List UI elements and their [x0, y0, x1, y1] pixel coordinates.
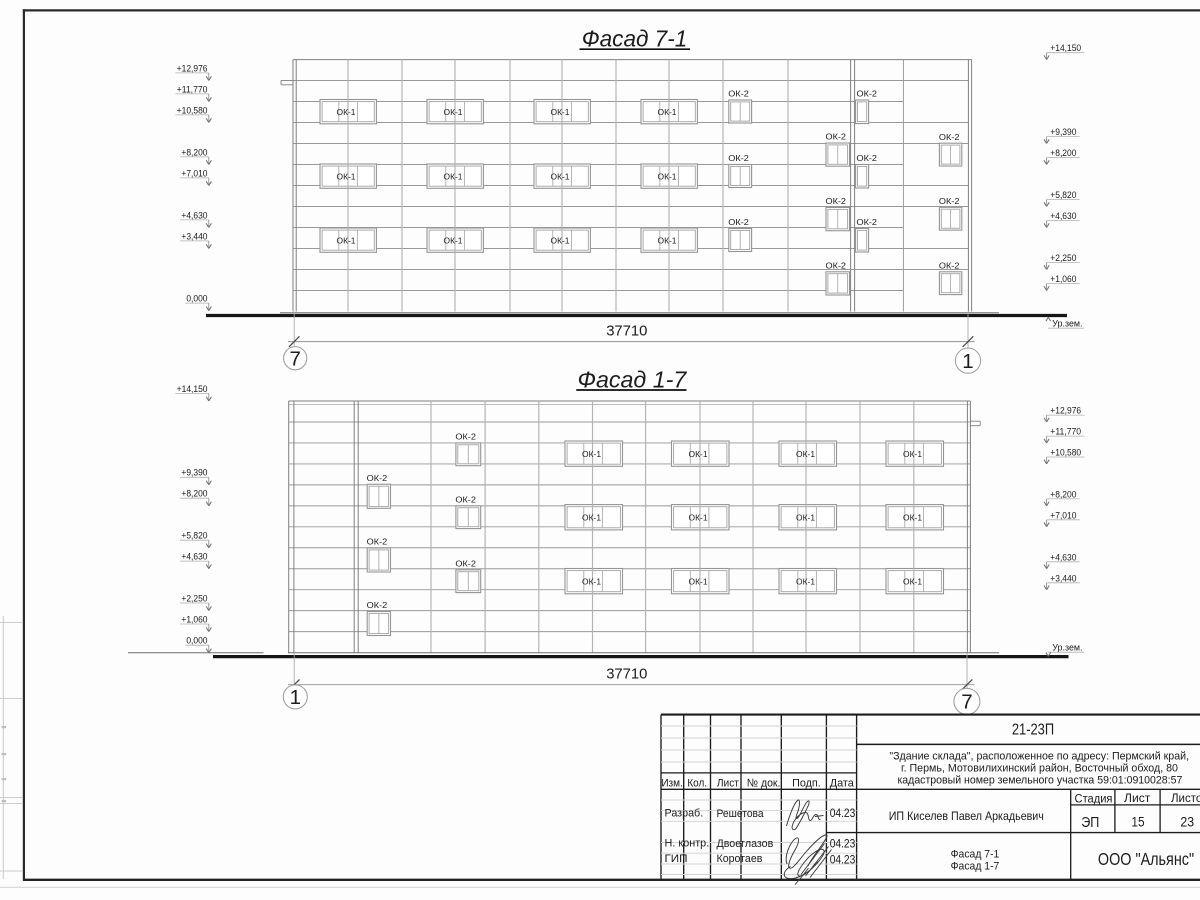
svg-text:+8,200: +8,200	[181, 489, 207, 499]
svg-text:+7,010: +7,010	[1050, 510, 1076, 520]
svg-text:ОК-1: ОК-1	[796, 512, 815, 522]
svg-text:Подп.: Подп.	[792, 777, 821, 789]
svg-text:ОК-2: ОК-2	[857, 217, 878, 227]
svg-text:+1,060: +1,060	[181, 614, 207, 624]
svg-text:15: 15	[1131, 813, 1144, 829]
svg-text:ОК-2: ОК-2	[939, 132, 960, 142]
svg-text:+14,150: +14,150	[1050, 43, 1081, 53]
svg-text:ОК-2: ОК-2	[826, 261, 847, 271]
svg-text:ОК-1: ОК-1	[689, 576, 708, 586]
svg-text:ОК-1: ОК-1	[658, 171, 677, 181]
svg-text:ОК-2: ОК-2	[455, 432, 476, 442]
svg-text:ОК-1: ОК-1	[337, 235, 356, 245]
svg-text:37710: 37710	[606, 666, 647, 683]
svg-text:04.23: 04.23	[830, 837, 856, 850]
svg-text:ОК-2: ОК-2	[728, 153, 749, 163]
svg-text:ОК-2: ОК-2	[455, 559, 476, 569]
svg-text:+7,010: +7,010	[181, 168, 207, 178]
svg-text:+9,390: +9,390	[1050, 127, 1076, 137]
svg-text:ОК-2: ОК-2	[857, 153, 878, 163]
svg-text:ОК-1: ОК-1	[582, 576, 601, 586]
svg-text:ОК-1: ОК-1	[551, 171, 570, 181]
svg-text:ОК-1: ОК-1	[444, 171, 463, 181]
svg-text:+12,976: +12,976	[1050, 406, 1081, 416]
svg-text:0,000: 0,000	[186, 294, 207, 304]
svg-text:21-23П: 21-23П	[1012, 721, 1054, 738]
svg-text:ОК-1: ОК-1	[903, 512, 922, 522]
svg-text:ОК-1: ОК-1	[337, 107, 356, 117]
svg-text:04.23: 04.23	[830, 807, 856, 820]
svg-text:Лист: Лист	[717, 777, 739, 789]
svg-text:Кол.: Кол.	[687, 777, 707, 789]
svg-text:0,000: 0,000	[186, 636, 207, 646]
svg-text:Дата: Дата	[830, 777, 855, 789]
svg-text:ОК-2: ОК-2	[728, 89, 749, 99]
svg-text:ОК-1: ОК-1	[551, 107, 570, 117]
svg-text:ОК-1: ОК-1	[582, 449, 601, 459]
svg-text:+12,976: +12,976	[177, 63, 208, 73]
svg-text:ОК-2: ОК-2	[367, 537, 388, 547]
svg-text:+8,200: +8,200	[1050, 489, 1076, 499]
svg-text:1: 1	[962, 350, 973, 373]
svg-text:ОК-1: ОК-1	[582, 512, 601, 522]
svg-text:ОК-1: ОК-1	[903, 576, 922, 586]
svg-text:+4,630: +4,630	[1050, 211, 1076, 221]
svg-text:ОК-2: ОК-2	[826, 196, 847, 206]
svg-text:+8,200: +8,200	[1050, 148, 1076, 158]
svg-text:Двоеглазов: Двоеглазов	[717, 838, 774, 850]
svg-text:7: 7	[289, 347, 300, 370]
svg-text:кадастровый номер земельного у: кадастровый номер земельного участка 59:…	[897, 775, 1182, 787]
svg-text:ЭП: ЭП	[1081, 815, 1099, 831]
svg-text:+10,580: +10,580	[177, 105, 208, 115]
svg-text:Фасад 1-7: Фасад 1-7	[578, 367, 688, 393]
svg-text:"Здание склада", расположенное: "Здание склада", расположенное по адресу…	[889, 750, 1189, 762]
svg-text:Фасад 1-7: Фасад 1-7	[951, 860, 1000, 872]
svg-text:ОК-1: ОК-1	[551, 235, 570, 245]
svg-text:ОК-2: ОК-2	[939, 261, 960, 271]
svg-text:ОК-2: ОК-2	[939, 196, 960, 206]
svg-text:+5,820: +5,820	[181, 531, 207, 541]
svg-text:ОК-2: ОК-2	[857, 89, 878, 99]
svg-text:+10,580: +10,580	[1050, 448, 1081, 458]
svg-text:г. Пермь, Мотовилихинский райо: г. Пермь, Мотовилихинский район, Восточн…	[901, 762, 1178, 774]
svg-text:+8,200: +8,200	[181, 147, 207, 157]
svg-text:7: 7	[961, 691, 972, 714]
svg-text:ОК-1: ОК-1	[658, 235, 677, 245]
svg-text:+3,440: +3,440	[181, 231, 207, 241]
svg-text:Листов: Листов	[1171, 793, 1200, 805]
svg-text:37710: 37710	[606, 322, 647, 339]
svg-text:Н. контр.: Н. контр.	[665, 838, 710, 850]
svg-text:Лист: Лист	[1124, 793, 1151, 805]
svg-text:ИП Киселев Павел Аркадьевич: ИП Киселев Павел Аркадьевич	[889, 809, 1044, 823]
svg-text:ОК-1: ОК-1	[689, 449, 708, 459]
svg-text:Фасад 7-1: Фасад 7-1	[582, 25, 688, 51]
svg-text:ОК-1: ОК-1	[444, 107, 463, 117]
svg-text:Фасад 7-1: Фасад 7-1	[951, 849, 1000, 861]
svg-text:+4,630: +4,630	[181, 552, 207, 562]
svg-text:ОК-1: ОК-1	[444, 235, 463, 245]
svg-text:Изм.: Изм.	[661, 777, 683, 789]
svg-text:ООО "Альянс": ООО "Альянс"	[1098, 849, 1194, 869]
svg-text:ОК-2: ОК-2	[826, 132, 847, 142]
svg-text:+3,440: +3,440	[1050, 573, 1076, 583]
svg-text:ОК-1: ОК-1	[903, 449, 922, 459]
svg-text:ОК-2: ОК-2	[367, 473, 388, 483]
svg-text:ГИП: ГИП	[665, 853, 688, 865]
svg-text:23: 23	[1180, 813, 1194, 829]
svg-text:Ур.зем.: Ур.зем.	[1052, 319, 1082, 329]
svg-text:ОК-2: ОК-2	[455, 495, 476, 505]
svg-text:+11,770: +11,770	[1050, 427, 1081, 437]
svg-text:+4,630: +4,630	[1050, 552, 1076, 562]
svg-text:ОК-2: ОК-2	[728, 217, 749, 227]
svg-text:+4,630: +4,630	[181, 210, 207, 220]
svg-text:Стадия: Стадия	[1075, 794, 1113, 806]
svg-text:ОК-1: ОК-1	[796, 576, 815, 586]
svg-text:ОК-1: ОК-1	[337, 171, 356, 181]
svg-text:ОК-1: ОК-1	[796, 449, 815, 459]
svg-text:+5,820: +5,820	[1050, 190, 1076, 200]
svg-text:+2,250: +2,250	[181, 593, 207, 603]
svg-text:+9,390: +9,390	[181, 468, 207, 478]
svg-text:ОК-1: ОК-1	[658, 107, 677, 117]
svg-text:1: 1	[290, 686, 301, 709]
svg-text:+11,770: +11,770	[177, 84, 208, 94]
svg-text:ОК-1: ОК-1	[689, 512, 708, 522]
svg-text:Ур.зем.: Ур.зем.	[1052, 643, 1082, 653]
svg-text:Коротаев: Коротаев	[717, 853, 763, 865]
svg-text:№ док.: № док.	[747, 777, 781, 789]
svg-text:Решетова: Решетова	[717, 808, 765, 820]
svg-text:04.23: 04.23	[830, 853, 856, 866]
svg-text:+1,060: +1,060	[1050, 274, 1076, 284]
svg-text:Разраб.: Разраб.	[665, 808, 704, 820]
svg-text:+14,150: +14,150	[177, 384, 208, 394]
svg-text:+2,250: +2,250	[1050, 253, 1076, 263]
svg-text:ОК-2: ОК-2	[367, 600, 388, 610]
